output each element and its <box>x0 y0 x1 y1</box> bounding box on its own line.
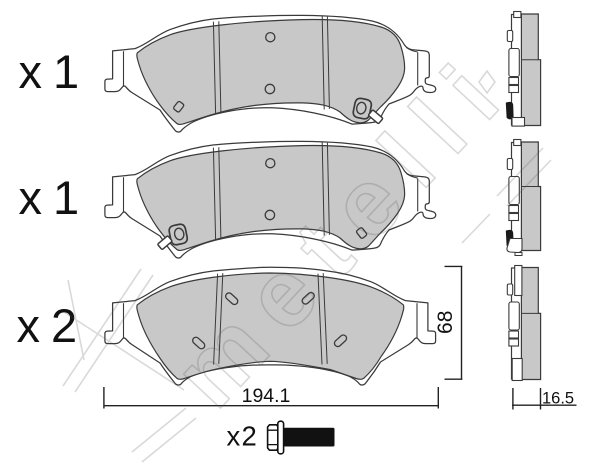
svg-text:x: x <box>19 45 43 98</box>
svg-text:1: 1 <box>53 45 79 98</box>
svg-text:2: 2 <box>242 420 257 451</box>
svg-text:x: x <box>19 171 43 224</box>
svg-text:68: 68 <box>434 311 457 334</box>
svg-text:16.5: 16.5 <box>542 390 574 408</box>
svg-text:1: 1 <box>53 171 79 224</box>
svg-text:x: x <box>17 299 41 352</box>
